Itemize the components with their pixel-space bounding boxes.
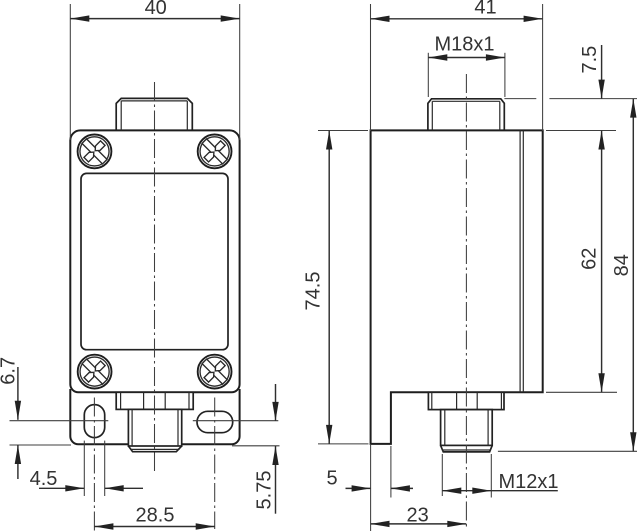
svg-text:84: 84 — [611, 254, 633, 276]
svg-text:28.5: 28.5 — [136, 504, 175, 526]
svg-text:41: 41 — [474, 0, 496, 18]
svg-text:5: 5 — [326, 468, 337, 490]
svg-text:74.5: 74.5 — [302, 272, 324, 311]
svg-text:6.7: 6.7 — [0, 357, 20, 385]
svg-text:M18x1: M18x1 — [434, 34, 494, 56]
svg-text:23: 23 — [406, 504, 428, 526]
svg-text:M12x1: M12x1 — [499, 471, 559, 493]
svg-text:4.5: 4.5 — [30, 468, 58, 490]
svg-text:62: 62 — [579, 248, 601, 270]
svg-text:40: 40 — [145, 0, 167, 19]
svg-text:7.5: 7.5 — [579, 46, 601, 74]
svg-text:5.75: 5.75 — [253, 471, 275, 510]
